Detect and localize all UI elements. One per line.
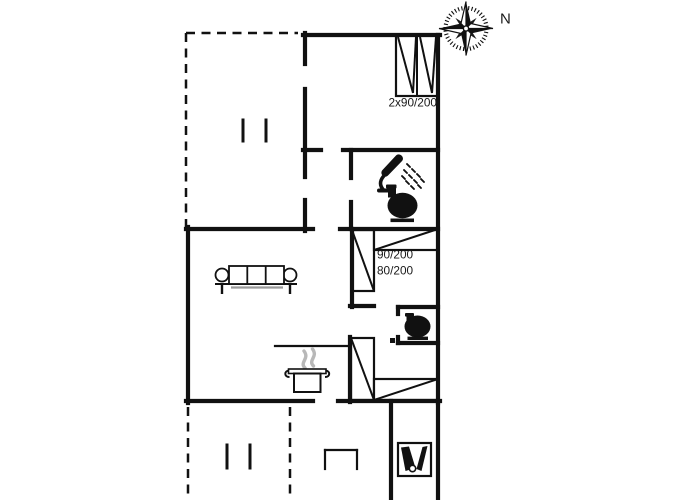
steam-icon (312, 349, 315, 366)
toilet-base (391, 219, 415, 223)
shower-spray (402, 164, 424, 189)
terrace-post-ticks (227, 120, 266, 468)
shower-icon (379, 154, 424, 190)
toilet-base (408, 337, 429, 340)
bed-90-size-label: 90/200 (377, 248, 414, 262)
bed-80-size-label: 80/200 (377, 264, 414, 278)
toilet-bowl (405, 316, 431, 338)
sofa-right-arm (284, 269, 297, 282)
shower-hose (381, 174, 386, 190)
toilet-bowl (388, 193, 418, 218)
sofa-icon (215, 266, 297, 294)
sofa-cushions (229, 266, 284, 284)
double-bed-size-label: 2x90/200 (388, 96, 437, 110)
compass-hub (463, 26, 468, 31)
compass-north-label: N (500, 11, 511, 28)
single-bed-vertical (351, 338, 374, 400)
utility-fixture-icon (398, 443, 431, 476)
single-bed-horizontal (374, 379, 438, 400)
thin-lines-layer (275, 346, 357, 469)
bed-symbols-layer (351, 35, 438, 400)
door-posts-layer (390, 338, 395, 343)
door-post (390, 338, 395, 343)
pot-body (294, 374, 321, 393)
sofa-left-arm (216, 269, 229, 282)
compass-rose-icon (439, 2, 493, 56)
single-bed-90-200 (352, 230, 374, 291)
utility-fixture-knob (409, 465, 415, 471)
steam-icon (303, 351, 306, 368)
floor-plan-canvas: N 2x90/200 90/200 80/200 (0, 0, 700, 500)
double-bed-2x90-200 (396, 35, 438, 96)
cooking-pot-icon (285, 349, 329, 392)
toilet-icon (386, 185, 418, 223)
floor-plan-page: N 2x90/200 90/200 80/200 (0, 0, 700, 500)
toilet-icon (405, 313, 431, 340)
